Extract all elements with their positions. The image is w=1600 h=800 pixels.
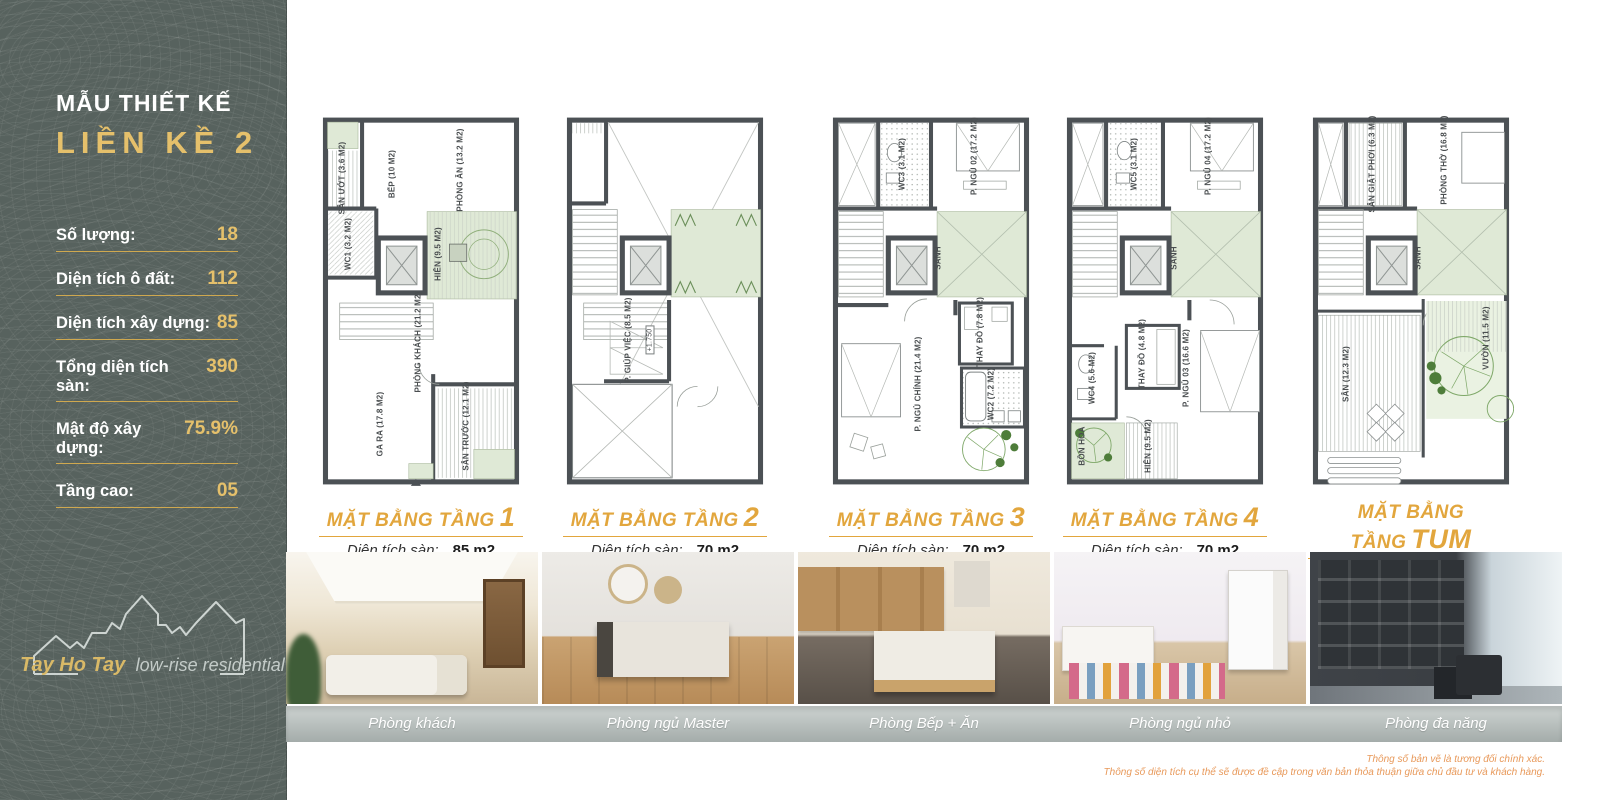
room-label: SẢNH	[1414, 246, 1423, 269]
caption-living-room: Phòng khách	[286, 706, 538, 742]
floor-plan-tum: SÂN GIẶT PHƠI (6.3 M2) PHÒNG THỜ (16.8 M…	[1308, 112, 1514, 581]
plan-number: 3	[1010, 502, 1026, 532]
room-label: HIÊN (9.5 M2)	[1144, 419, 1153, 473]
plan-title: MẶT BẰNG TẦNGTUM	[1308, 502, 1514, 559]
room-label: SÂN GIẶT PHƠI (6.3 M2)	[1368, 115, 1377, 212]
logo-brand: Tay Ho Tay	[20, 654, 125, 676]
stat-value: 18	[217, 224, 238, 246]
room-label: WC2 (7.2 M2)	[987, 368, 996, 420]
plan-title: MẶT BẰNG TẦNG4	[1063, 502, 1268, 537]
caption-multipurpose-room: Phòng đa năng	[1310, 706, 1562, 742]
room-elevation-label: +1.750	[646, 326, 655, 355]
room-label: SÂN (12.3 M2)	[1342, 346, 1351, 402]
floor-plan-3: WC3 (3.1 M2) P. NGỦ 02 (17.2 M2) SẢNH TH…	[828, 112, 1034, 559]
stat-value: 75.9%	[184, 418, 238, 440]
room-label: SẢNH	[1170, 246, 1179, 269]
plan-title-text: MẶT BẰNG TẦNG	[1071, 510, 1239, 531]
floor-plan-2-label: MẶT BẰNG TẦNG2 Diện tích sàn:70 m2	[562, 502, 768, 559]
photo-decor	[286, 634, 321, 704]
stat-row-floors: Tầng cao: 05	[56, 480, 238, 508]
room-label: SÂN ƯỚT (3.6 M2)	[338, 142, 347, 215]
stat-row-total-floor-area: Tổng diện tích sàn: 390	[56, 356, 238, 402]
floor-plan-1-drawing: SÂN ƯỚT (3.6 M2) BẾP (10 M2) PHÒNG ĂN (1…	[318, 112, 524, 490]
room-label: THAY ĐỒ (4.8 M2)	[1138, 319, 1147, 389]
photo-decor	[874, 631, 995, 692]
floor-plan-3-label: MẶT BẰNG TẦNG3 Diện tích sàn:70 m2	[828, 502, 1034, 559]
room-label: HIÊN (9.5 M2)	[434, 227, 443, 281]
floor-plan-1: SÂN ƯỚT (3.6 M2) BẾP (10 M2) PHÒNG ĂN (1…	[318, 112, 524, 559]
disclaimer-line-1: Thông số bản vẽ là tương đối chính xác.	[1104, 753, 1545, 766]
title-lien-ke-2: LIỀN KỀ 2	[56, 125, 258, 161]
plan-number: 4	[1244, 502, 1260, 532]
room-label: P. GIÚP VIỆC (8.5 M2)	[624, 297, 633, 382]
room-label: WC1 (3.2 M2)	[344, 218, 353, 270]
photo-decor	[483, 579, 526, 667]
photo-living-room	[286, 552, 538, 704]
floor-plan-2: P. GIÚP VIỆC (8.5 M2) +1.750 MẶT BẰNG TẦ…	[562, 112, 768, 559]
room-label: WC4 (5.6 M2)	[1088, 352, 1097, 404]
photo-multipurpose-room	[1310, 552, 1562, 704]
room-label: SÂN TRƯỚC (12.1 M2)	[462, 381, 471, 470]
stat-row-lot-area: Diện tích ô đất: 112	[56, 268, 238, 296]
disclaimer: Thông số bản vẽ là tương đối chính xác. …	[1104, 753, 1545, 779]
room-label: SẢNH	[934, 246, 943, 269]
room-label: THAY ĐỒ (7.8 M2)	[976, 297, 985, 367]
plan-number: 2	[744, 502, 760, 532]
photo-decor	[1318, 560, 1464, 669]
photo-decor	[326, 655, 467, 695]
room-label: P. NGỦ CHÍNH (21.4 M2)	[914, 337, 923, 432]
plan-title-text: MẶT BẰNG TẦNG	[327, 510, 495, 531]
stat-row-build-area: Diện tích xây dựng: 85	[56, 312, 238, 340]
photo-decor	[1456, 655, 1501, 695]
room-label: P. NGỦ 04 (17.2 M2)	[1204, 117, 1213, 195]
stat-row-density: Mật độ xây dựng: 75.9%	[56, 418, 238, 464]
plan-number: TUM	[1411, 524, 1471, 554]
stat-label: Mật độ xây dựng:	[56, 420, 184, 458]
plan-title: MẶT BẰNG TẦNG2	[563, 502, 768, 537]
room-label: WC5 (3.1 M2)	[1130, 138, 1139, 190]
logo-tagline: low-rise residential	[136, 655, 285, 675]
plan-title-text: MẶT BẰNG TẦNG	[571, 510, 739, 531]
photo-master-bedroom	[542, 552, 794, 704]
interior-photos-row	[286, 552, 1562, 704]
stat-label: Diện tích ô đất:	[56, 270, 175, 289]
brochure-page: MẪU THIẾT KẾ LIỀN KỀ 2 Số lượng: 18 Diện…	[0, 0, 1600, 800]
floor-plan-4-drawing: WC5 (3.1 M2) P. NGỦ 04 (17.2 M2) SẢNH TH…	[1062, 112, 1268, 490]
project-logo: Tay Ho Tay low-rise residential	[20, 578, 266, 710]
room-label: WC3 (3.1 M2)	[898, 138, 907, 190]
caption-small-bedroom: Phòng ngủ nhỏ	[1054, 706, 1306, 742]
plan-title: MẶT BẰNG TẦNG1	[319, 502, 524, 537]
room-label: BỒN HOA	[1078, 426, 1087, 465]
page-title: MẪU THIẾT KẾ LIỀN KỀ 2	[56, 90, 258, 161]
stat-label: Số lượng:	[56, 226, 136, 245]
plan-number: 1	[500, 502, 516, 532]
photo-decor	[954, 561, 989, 607]
plan-title-text: MẶT BẰNG TẦNG	[837, 510, 1005, 531]
photo-decor	[608, 564, 648, 604]
floor-plan-1-label: MẶT BẰNG TẦNG1 Diện tích sàn:85 m2	[318, 502, 524, 559]
stats-list: Số lượng: 18 Diện tích ô đất: 112 Diện t…	[56, 224, 238, 524]
room-label: PHÒNG KHÁCH (21.2 M2)	[414, 291, 423, 392]
stat-value: 112	[207, 268, 238, 290]
room-label: P. NGỦ 03 (16.6 M2)	[1182, 329, 1191, 407]
photo-decor	[1069, 663, 1225, 699]
title-design-template: MẪU THIẾT KẾ	[56, 90, 258, 117]
floor-plan-2-drawing: P. GIÚP VIỆC (8.5 M2) +1.750	[562, 112, 768, 490]
stat-label: Tổng diện tích sàn:	[56, 358, 206, 396]
floor-plan-4: WC5 (3.1 M2) P. NGỦ 04 (17.2 M2) SẢNH TH…	[1062, 112, 1268, 559]
room-label: GA RA (17.8 M2)	[376, 392, 385, 457]
disclaimer-line-2: Thông số diện tích cụ thể sẽ được đề cập…	[1104, 766, 1545, 779]
floor-plan-3-drawing: WC3 (3.1 M2) P. NGỦ 02 (17.2 M2) SẢNH TH…	[828, 112, 1034, 490]
photo-decor	[1310, 686, 1562, 704]
stat-value: 85	[217, 312, 238, 334]
room-label: VƯỜN (11.5 M2)	[1482, 306, 1491, 369]
stat-value: 390	[206, 356, 238, 378]
stat-value: 05	[217, 480, 238, 502]
room-label: PHÒNG ĂN (13.2 M2)	[456, 128, 465, 211]
room-label: PHÒNG THỜ (16.8 M2)	[1440, 115, 1449, 204]
stat-label: Diện tích xây dựng:	[56, 314, 210, 333]
caption-kitchen-dining: Phòng Bếp + Ăn	[798, 706, 1050, 742]
room-label: BẾP (10 M2)	[388, 150, 397, 198]
caption-master-bedroom: Phòng ngủ Master	[542, 706, 794, 742]
photo-decor	[597, 622, 729, 677]
photo-caption-bar: Phòng khách Phòng ngủ Master Phòng Bếp +…	[286, 706, 1562, 742]
floor-plan-tum-drawing: SÂN GIẶT PHƠI (6.3 M2) PHÒNG THỜ (16.8 M…	[1308, 112, 1514, 490]
room-label: P. NGỦ 02 (17.2 M2)	[970, 117, 979, 195]
photo-small-bedroom	[1054, 552, 1306, 704]
sidebar: MẪU THIẾT KẾ LIỀN KỀ 2 Số lượng: 18 Diện…	[0, 0, 287, 800]
plan-title: MẶT BẰNG TẦNG3	[829, 502, 1034, 537]
logo-text: Tay Ho Tay low-rise residential	[20, 654, 266, 677]
photo-decor	[798, 567, 944, 631]
photo-decor	[1228, 570, 1288, 669]
stat-label: Tầng cao:	[56, 482, 134, 501]
stat-row-quantity: Số lượng: 18	[56, 224, 238, 252]
floor-plan-4-label: MẶT BẰNG TẦNG4 Diện tích sàn:70 m2	[1062, 502, 1268, 559]
photo-kitchen-dining	[798, 552, 1050, 704]
